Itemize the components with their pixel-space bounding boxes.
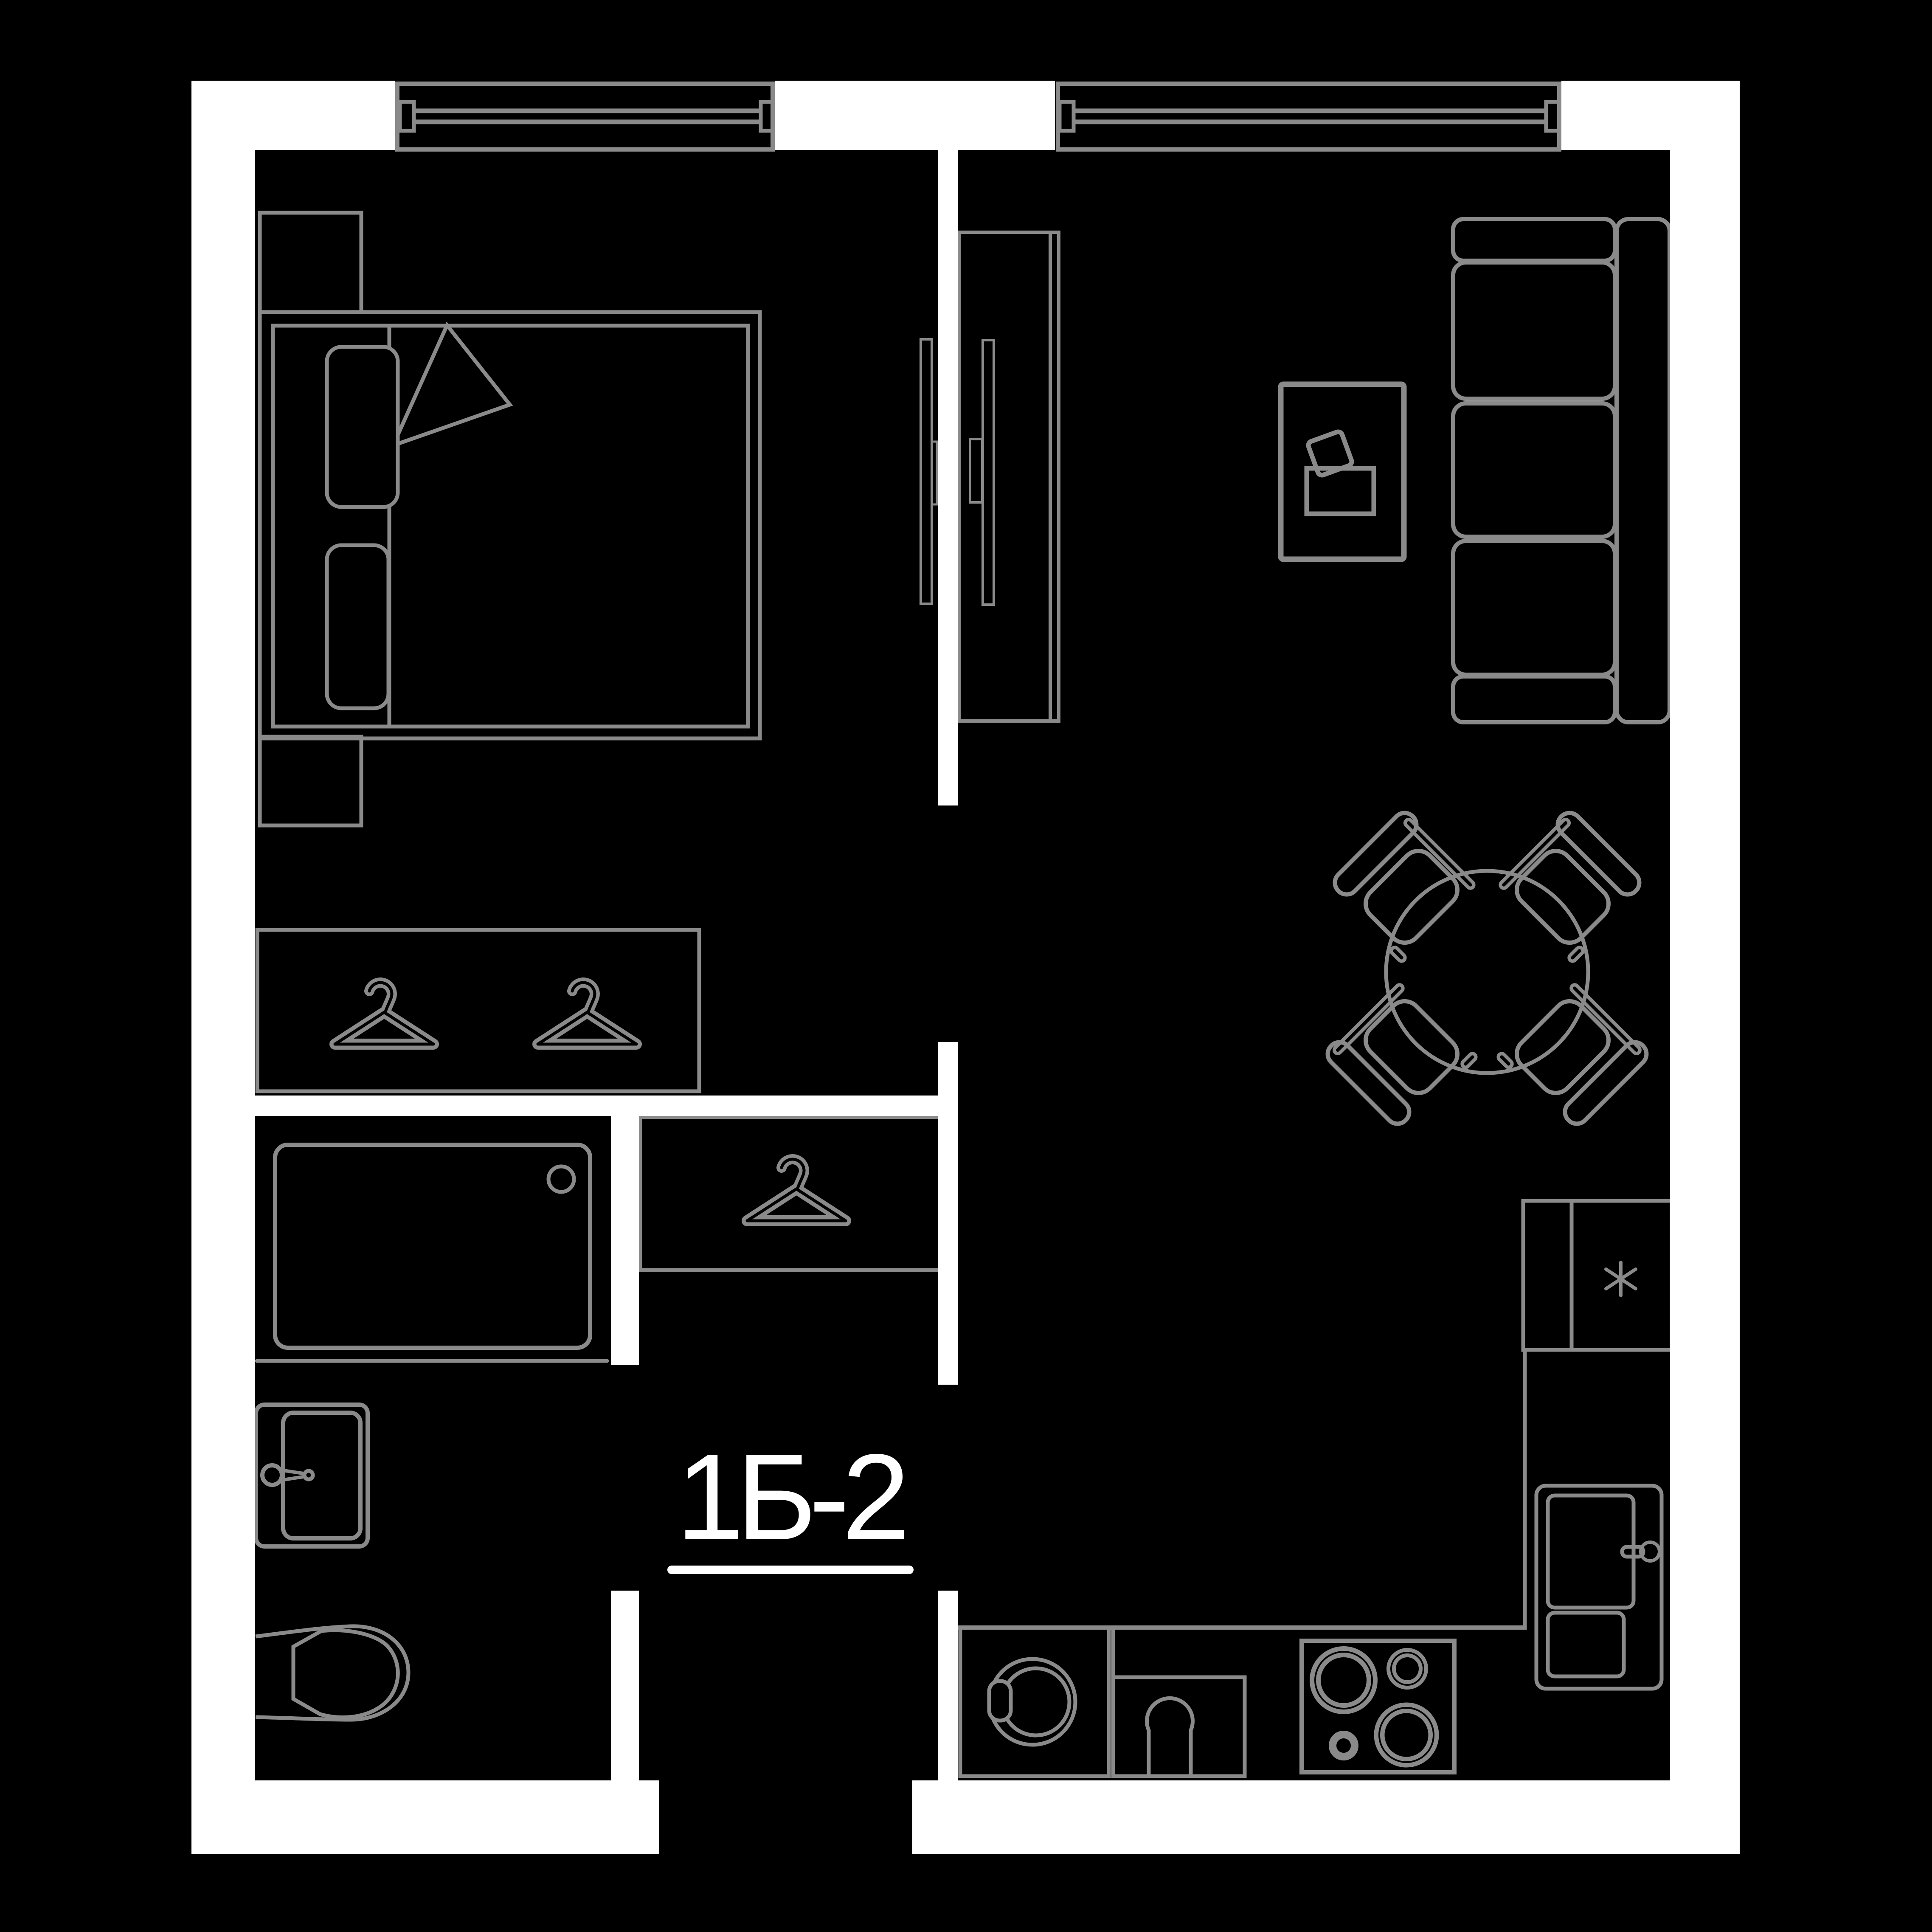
svg-text:1Б-2: 1Б-2 (676, 1429, 905, 1566)
